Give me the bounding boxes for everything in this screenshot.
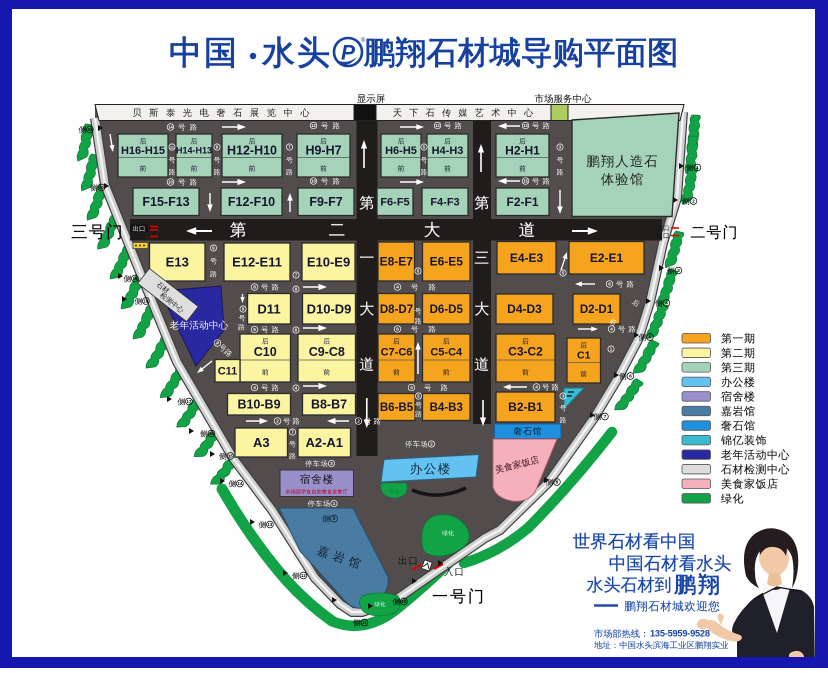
- svg-text:C3-C2: C3-C2: [508, 345, 543, 359]
- svg-text:8: 8: [253, 285, 256, 290]
- svg-text:C11: C11: [218, 366, 238, 378]
- svg-text:15: 15: [228, 454, 233, 459]
- svg-text:19: 19: [133, 276, 138, 281]
- svg-text:E10-E9: E10-E9: [307, 255, 350, 270]
- svg-text:11: 11: [362, 620, 367, 625]
- svg-text:12: 12: [301, 573, 306, 578]
- svg-text:D10-D9: D10-D9: [307, 301, 352, 316]
- svg-text:4: 4: [253, 385, 256, 390]
- svg-text:8: 8: [556, 480, 559, 486]
- svg-text:C1: C1: [577, 349, 591, 361]
- svg-text:H14-H13: H14-H13: [176, 145, 212, 155]
- svg-text:B6-B5: B6-B5: [380, 402, 414, 414]
- svg-text:14: 14: [168, 124, 173, 129]
- svg-text:14: 14: [238, 481, 243, 486]
- svg-text:13: 13: [523, 123, 528, 128]
- svg-text:20: 20: [99, 185, 104, 190]
- svg-text:10: 10: [168, 179, 173, 184]
- svg-text:12: 12: [435, 123, 440, 128]
- svg-text:21: 21: [88, 127, 93, 132]
- svg-text:4: 4: [665, 301, 668, 307]
- svg-text:D2-D1: D2-D1: [580, 304, 614, 316]
- svg-text:®: ®: [361, 37, 366, 44]
- svg-text:16: 16: [209, 431, 214, 436]
- svg-text:10: 10: [402, 599, 407, 604]
- svg-text:H16-H15: H16-H15: [121, 145, 165, 157]
- svg-text:E2-E1: E2-E1: [590, 251, 624, 265]
- svg-text:E6-E5: E6-E5: [430, 255, 464, 269]
- svg-text:H12-H10: H12-H10: [227, 144, 277, 158]
- svg-text:3: 3: [677, 268, 680, 274]
- svg-text:E13: E13: [166, 255, 189, 270]
- svg-text:B8-B7: B8-B7: [311, 398, 347, 412]
- svg-text:E12-E11: E12-E11: [232, 255, 282, 270]
- svg-text:F4-F3: F4-F3: [430, 197, 459, 209]
- svg-text:D4-D3: D4-D3: [507, 302, 542, 316]
- svg-text:6: 6: [608, 282, 611, 287]
- svg-text:H2-H1: H2-H1: [505, 143, 540, 157]
- svg-text:9: 9: [333, 516, 336, 522]
- svg-text:E4-E3: E4-E3: [510, 251, 544, 265]
- svg-text:F6-F5: F6-F5: [380, 197, 409, 209]
- svg-text:C5-C4: C5-C4: [430, 346, 463, 358]
- svg-text:B4-B3: B4-B3: [430, 402, 463, 414]
- svg-text:B10-B9: B10-B9: [237, 398, 280, 412]
- svg-text:13: 13: [268, 522, 273, 527]
- svg-text:10: 10: [311, 178, 316, 183]
- svg-text:135-5959-9528: 135-5959-9528: [650, 629, 710, 639]
- svg-text:4: 4: [535, 385, 538, 390]
- svg-text:6: 6: [396, 327, 399, 332]
- svg-text:F15-F13: F15-F13: [142, 195, 189, 209]
- svg-text:E8-E7: E8-E7: [380, 255, 414, 269]
- svg-text:2: 2: [357, 419, 360, 424]
- svg-text:4: 4: [610, 327, 613, 332]
- svg-text:6: 6: [629, 374, 632, 380]
- svg-text:F9-F7: F9-F7: [309, 195, 342, 209]
- svg-text:17: 17: [187, 399, 192, 404]
- svg-text:C9-C8: C9-C8: [309, 345, 345, 359]
- svg-text:12: 12: [311, 123, 316, 128]
- svg-text:H6-H5: H6-H5: [385, 145, 417, 157]
- svg-text:2: 2: [692, 199, 695, 205]
- svg-text:A2-A1: A2-A1: [305, 435, 343, 450]
- svg-text:7: 7: [604, 414, 607, 420]
- svg-text:6: 6: [253, 327, 256, 332]
- svg-text:H9-H7: H9-H7: [305, 144, 341, 158]
- svg-text:18: 18: [144, 299, 149, 304]
- svg-text:H4-H3: H4-H3: [432, 145, 464, 157]
- svg-text:B2-B1: B2-B1: [508, 400, 543, 414]
- svg-text:15: 15: [523, 178, 528, 183]
- svg-text:D6-D5: D6-D5: [430, 304, 464, 316]
- svg-text:2: 2: [276, 419, 279, 424]
- svg-text:P: P: [341, 42, 356, 65]
- svg-text:4: 4: [410, 385, 413, 390]
- svg-text:D8-D7: D8-D7: [380, 304, 413, 316]
- svg-text:C10: C10: [254, 345, 277, 359]
- svg-text:D11: D11: [257, 301, 280, 316]
- svg-text:1: 1: [696, 165, 699, 171]
- svg-text:A3: A3: [253, 435, 270, 450]
- svg-text:4: 4: [396, 285, 399, 290]
- svg-text:F12-F10: F12-F10: [228, 195, 275, 209]
- svg-text:F2-F1: F2-F1: [506, 195, 538, 209]
- svg-text:5: 5: [649, 335, 652, 341]
- svg-text:C7-C6: C7-C6: [381, 346, 413, 358]
